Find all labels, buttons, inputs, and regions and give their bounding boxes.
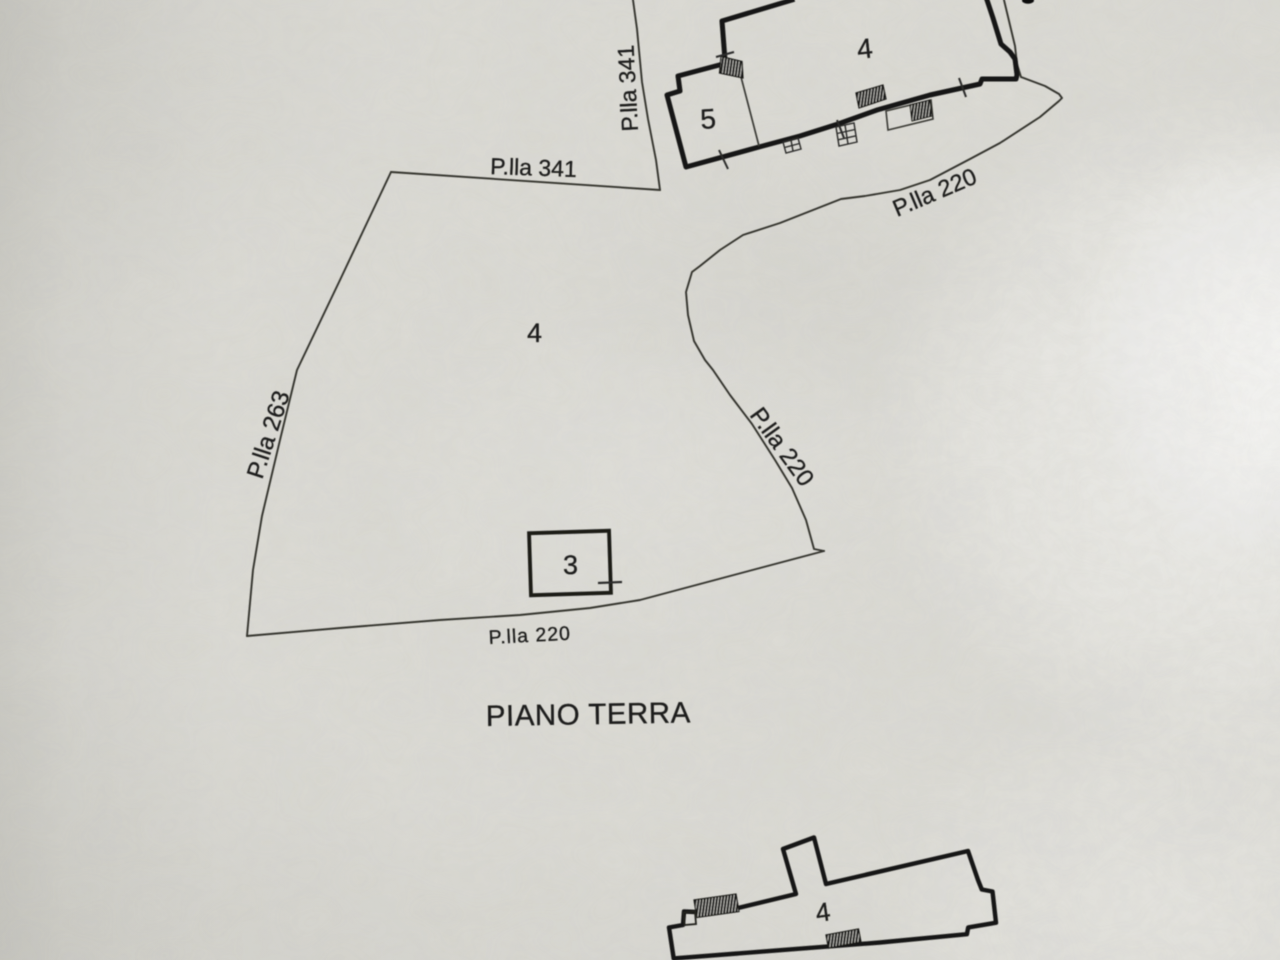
svg-text:3: 3 xyxy=(563,550,578,580)
svg-text:P.lla 341: P.lla 341 xyxy=(490,153,577,182)
svg-text:P.lla 220: P.lla 220 xyxy=(488,623,571,649)
svg-text:4: 4 xyxy=(855,33,874,65)
svg-text:4: 4 xyxy=(527,318,542,348)
svg-text:P.lla 341: P.lla 341 xyxy=(612,44,642,132)
svg-text:PIANO TERRA: PIANO TERRA xyxy=(486,696,691,733)
svg-text:5: 5 xyxy=(699,103,717,135)
